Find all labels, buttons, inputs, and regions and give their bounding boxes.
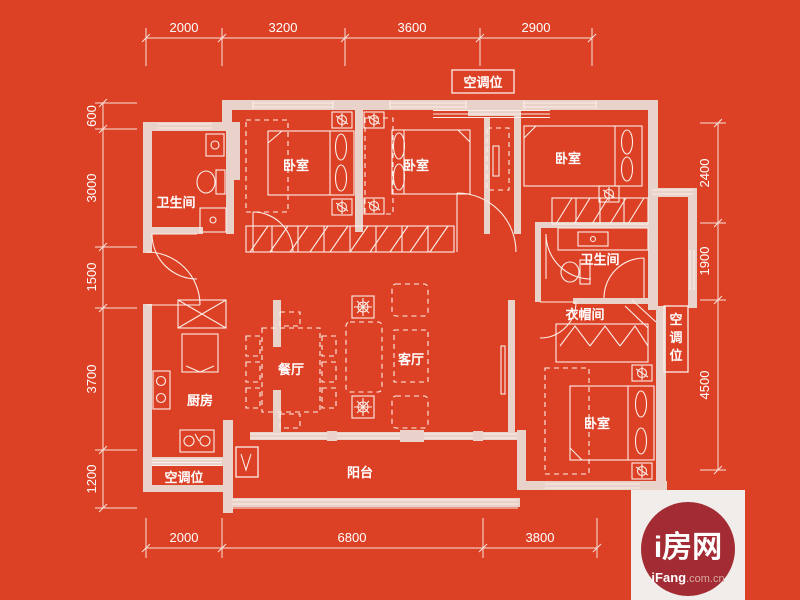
- label-bathroom-right: 卫生间: [580, 252, 619, 267]
- floorplan-drawing: 卫生间 卧室 卧室 卧室 卫生间 衣帽间 卧室 厨房 餐厅 客厅 阳台 空调位 …: [0, 0, 800, 600]
- dim-top-4: 2900: [522, 20, 551, 35]
- label-kitchen: 厨房: [187, 393, 213, 408]
- dim-left-3: 1500: [84, 263, 99, 292]
- washer-box: [236, 447, 258, 477]
- label-bedroom-left: 卧室: [283, 158, 309, 173]
- floorplan-page: 卫生间 卧室 卧室 卧室 卫生间 衣帽间 卧室 厨房 餐厅 客厅 阳台 空调位 …: [0, 0, 800, 600]
- dimension-left: [95, 99, 137, 512]
- dim-right-1: 2400: [697, 159, 712, 188]
- dim-top-2: 3200: [269, 20, 298, 35]
- logo-title: i房网: [654, 531, 722, 564]
- label-bathroom-top-left: 卫生间: [156, 195, 195, 210]
- bathroom-top-left-fixtures: [197, 134, 226, 232]
- dim-bottom-3: 3800: [526, 530, 555, 545]
- label-bedroom-right: 卧室: [555, 151, 581, 166]
- dim-right-3: 4500: [697, 371, 712, 400]
- label-balcony: 阳台: [347, 465, 373, 480]
- logo-subtitle-brand: iFang: [651, 570, 686, 585]
- hall-sideboard: [246, 226, 454, 252]
- label-ac-right: 空调位: [667, 311, 685, 371]
- bedroom-right-furniture: [524, 126, 642, 202]
- label-dining: 餐厅: [277, 362, 304, 377]
- dim-left-2: 3000: [84, 174, 99, 203]
- label-living: 客厅: [398, 352, 424, 367]
- ifang-logo: i房网 iFang.com.cn: [631, 490, 745, 600]
- label-bedroom-middle: 卧室: [403, 158, 429, 173]
- dim-left-4: 3700: [84, 365, 99, 394]
- label-ac-top: 空调位: [463, 75, 502, 90]
- kitchen-fixtures: [153, 300, 226, 452]
- dim-bottom-2: 6800: [338, 530, 367, 545]
- corridor-duct: [487, 128, 509, 190]
- dim-top-3: 3600: [398, 20, 427, 35]
- dim-bottom-1: 2000: [170, 530, 199, 545]
- dim-left-5: 1200: [84, 465, 99, 494]
- label-bedroom-bottom: 卧室: [584, 416, 610, 431]
- logo-subtitle-suffix: .com.cn: [686, 573, 725, 585]
- label-ac-bottom-left: 空调位: [164, 470, 203, 485]
- logo-subtitle: iFang.com.cn: [651, 570, 724, 585]
- dim-left-1: 600: [84, 105, 99, 127]
- dim-right-2: 1900: [697, 247, 712, 276]
- dim-top-1: 2000: [170, 20, 199, 35]
- living-room-furniture: [346, 284, 505, 428]
- label-cloakroom: 衣帽间: [565, 307, 604, 322]
